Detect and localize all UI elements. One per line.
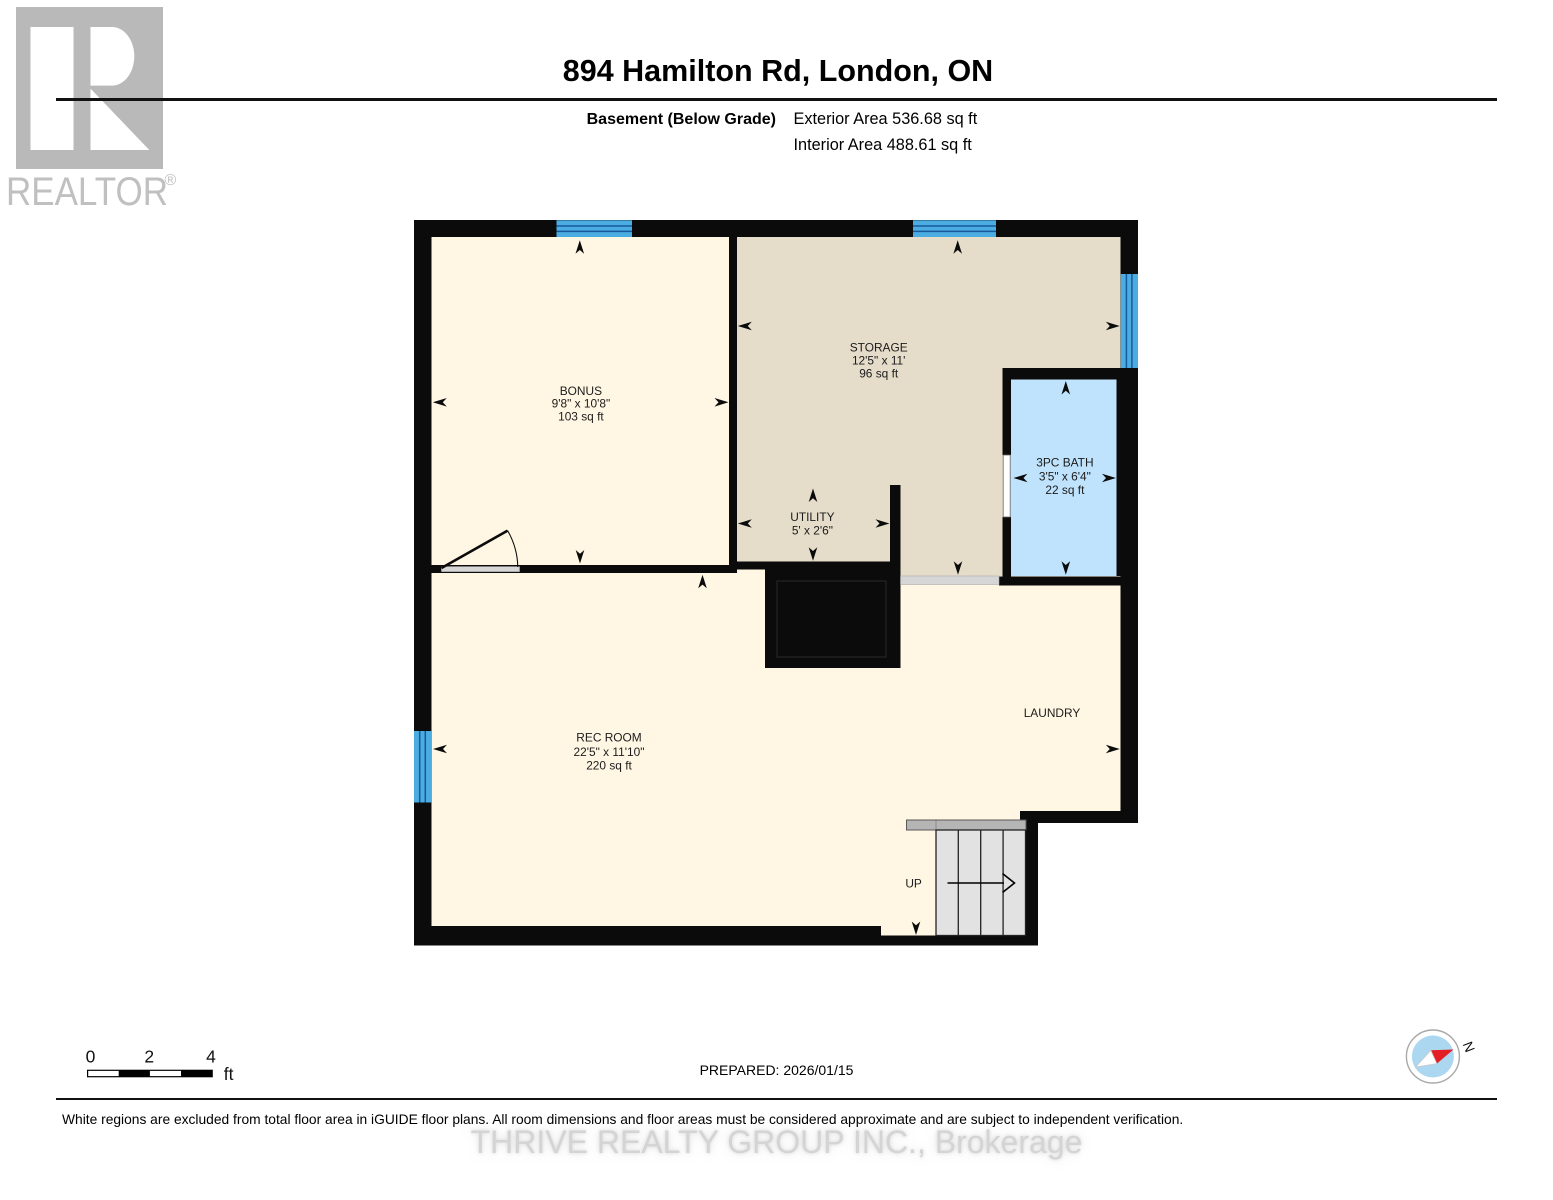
svg-text:REALTOR: REALTOR	[6, 170, 168, 214]
svg-text:LAUNDRY: LAUNDRY	[1024, 706, 1081, 720]
svg-text:REC ROOM: REC ROOM	[576, 730, 641, 744]
svg-text:103 sq ft: 103 sq ft	[558, 410, 604, 424]
svg-text:22 sq ft: 22 sq ft	[1045, 483, 1085, 497]
svg-text:5' x 2'6": 5' x 2'6"	[792, 524, 833, 538]
svg-text:12'5" x 11': 12'5" x 11'	[852, 354, 906, 368]
svg-text:96 sq ft: 96 sq ft	[859, 366, 899, 380]
svg-text:®: ®	[165, 172, 177, 189]
svg-text:N: N	[1460, 1039, 1479, 1054]
svg-text:220 sq ft: 220 sq ft	[586, 759, 632, 773]
svg-text:UTILITY: UTILITY	[790, 510, 834, 524]
svg-text:9'8" x 10'8": 9'8" x 10'8"	[552, 397, 611, 411]
svg-text:UP: UP	[905, 877, 922, 891]
svg-text:3PC BATH: 3PC BATH	[1036, 456, 1093, 470]
svg-text:3'5" x 6'4": 3'5" x 6'4"	[1039, 470, 1091, 484]
svg-text:22'5" x 11'10": 22'5" x 11'10"	[574, 745, 645, 759]
